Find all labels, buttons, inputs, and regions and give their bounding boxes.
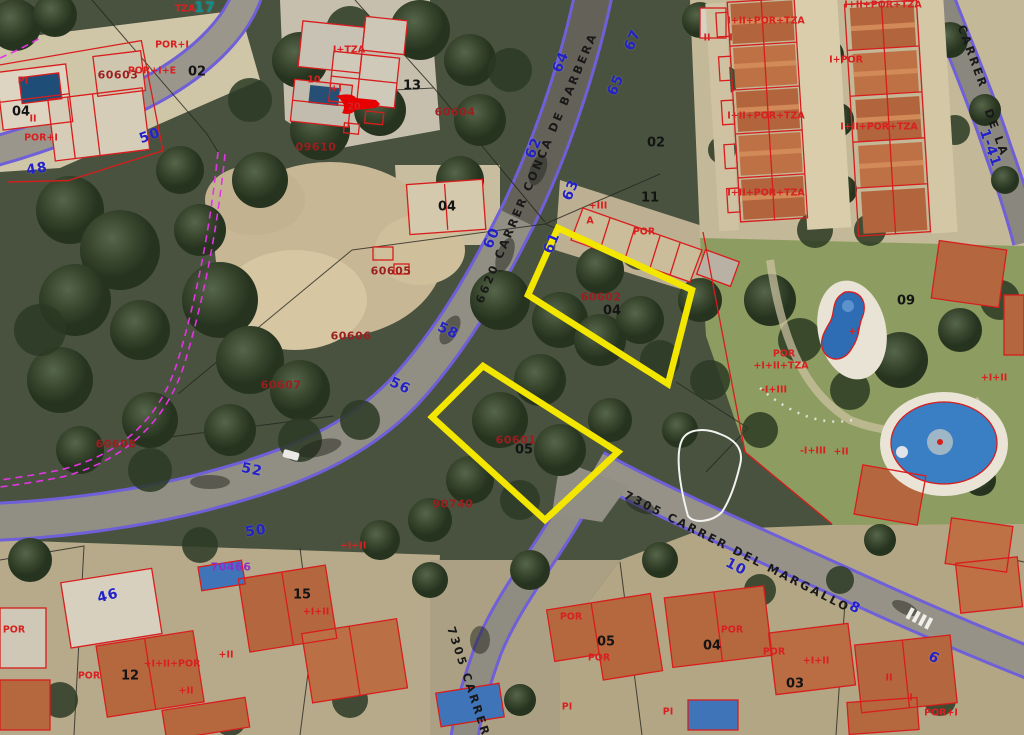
map-canvas[interactable] [0,0,1024,735]
oval-pool [880,392,1008,496]
map-viewport[interactable]: 6620 CARRER CONCA DE BARBERA7305 CARRER … [0,0,1024,735]
